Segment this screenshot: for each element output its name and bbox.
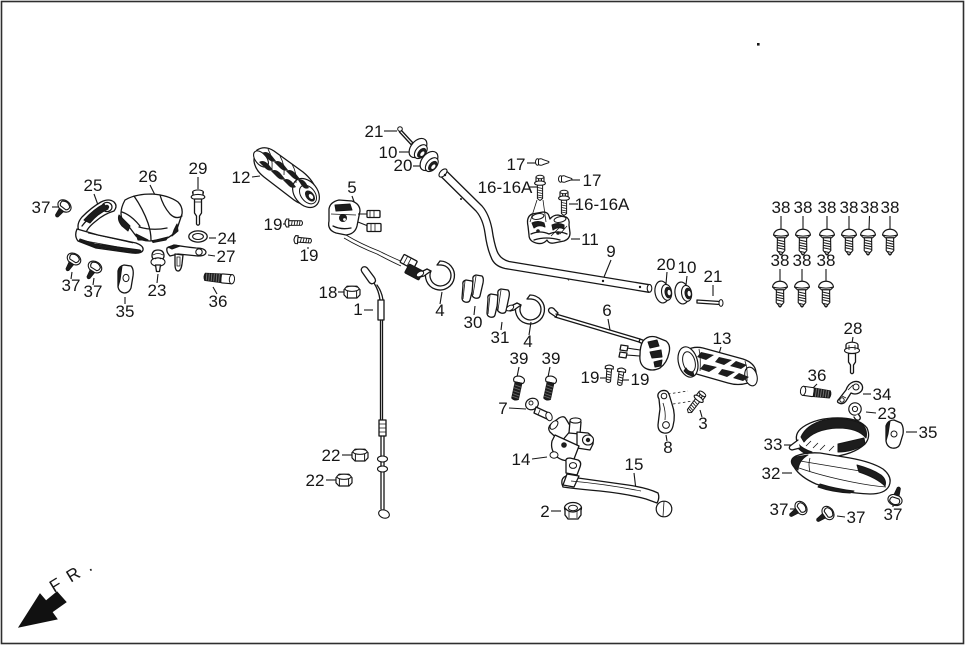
svg-text:17: 17 bbox=[507, 155, 526, 174]
svg-text:10: 10 bbox=[678, 258, 697, 277]
svg-text:21: 21 bbox=[365, 122, 384, 141]
svg-text:20: 20 bbox=[657, 255, 676, 274]
svg-text:39: 39 bbox=[542, 349, 561, 368]
svg-text:22: 22 bbox=[306, 471, 325, 490]
svg-text:38: 38 bbox=[818, 198, 837, 217]
svg-text:32: 32 bbox=[762, 464, 781, 483]
svg-text:2: 2 bbox=[540, 502, 549, 521]
svg-text:14: 14 bbox=[512, 450, 531, 469]
svg-text:19: 19 bbox=[300, 246, 319, 265]
svg-text:36: 36 bbox=[808, 366, 827, 385]
svg-text:37: 37 bbox=[32, 198, 51, 217]
svg-text:39: 39 bbox=[510, 349, 529, 368]
svg-text:25: 25 bbox=[84, 176, 103, 195]
svg-text:1: 1 bbox=[353, 300, 362, 319]
svg-text:5: 5 bbox=[347, 178, 356, 197]
svg-text:37: 37 bbox=[770, 500, 789, 519]
svg-text:3: 3 bbox=[698, 414, 707, 433]
svg-text:36: 36 bbox=[209, 292, 228, 311]
svg-text:8: 8 bbox=[663, 438, 672, 457]
svg-text:31: 31 bbox=[491, 328, 510, 347]
svg-text:16-16A: 16-16A bbox=[575, 195, 630, 214]
svg-text:12: 12 bbox=[232, 168, 251, 187]
svg-text:24: 24 bbox=[218, 229, 237, 248]
svg-text:33: 33 bbox=[764, 435, 783, 454]
svg-text:38: 38 bbox=[794, 198, 813, 217]
svg-text:37: 37 bbox=[847, 508, 866, 527]
svg-text:21: 21 bbox=[704, 267, 723, 286]
svg-text:38: 38 bbox=[881, 198, 900, 217]
svg-text:37: 37 bbox=[884, 505, 903, 524]
svg-text:30: 30 bbox=[464, 313, 483, 332]
svg-text:27: 27 bbox=[217, 247, 236, 266]
svg-text:11: 11 bbox=[581, 230, 599, 249]
svg-text:28: 28 bbox=[844, 319, 863, 338]
svg-text:20: 20 bbox=[394, 156, 413, 175]
svg-text:26: 26 bbox=[139, 167, 158, 186]
svg-text:19: 19 bbox=[631, 370, 650, 389]
svg-text:34: 34 bbox=[873, 385, 892, 404]
svg-text:15: 15 bbox=[625, 455, 644, 474]
svg-text:16-16A: 16-16A bbox=[478, 178, 533, 197]
svg-text:38: 38 bbox=[860, 198, 879, 217]
svg-text:35: 35 bbox=[919, 423, 938, 442]
svg-text:7: 7 bbox=[498, 399, 507, 418]
svg-text:13: 13 bbox=[713, 329, 732, 348]
svg-text:19: 19 bbox=[264, 215, 283, 234]
svg-text:9: 9 bbox=[606, 242, 615, 261]
svg-text:23: 23 bbox=[148, 281, 167, 300]
svg-text:38: 38 bbox=[840, 198, 859, 217]
svg-text:17: 17 bbox=[583, 171, 602, 190]
svg-text:6: 6 bbox=[602, 301, 611, 320]
svg-text:22: 22 bbox=[322, 446, 341, 465]
svg-text:38: 38 bbox=[772, 198, 791, 217]
svg-text:29: 29 bbox=[189, 159, 208, 178]
svg-text:19: 19 bbox=[581, 368, 600, 387]
svg-text:35: 35 bbox=[116, 302, 135, 321]
svg-text:18: 18 bbox=[319, 283, 338, 302]
